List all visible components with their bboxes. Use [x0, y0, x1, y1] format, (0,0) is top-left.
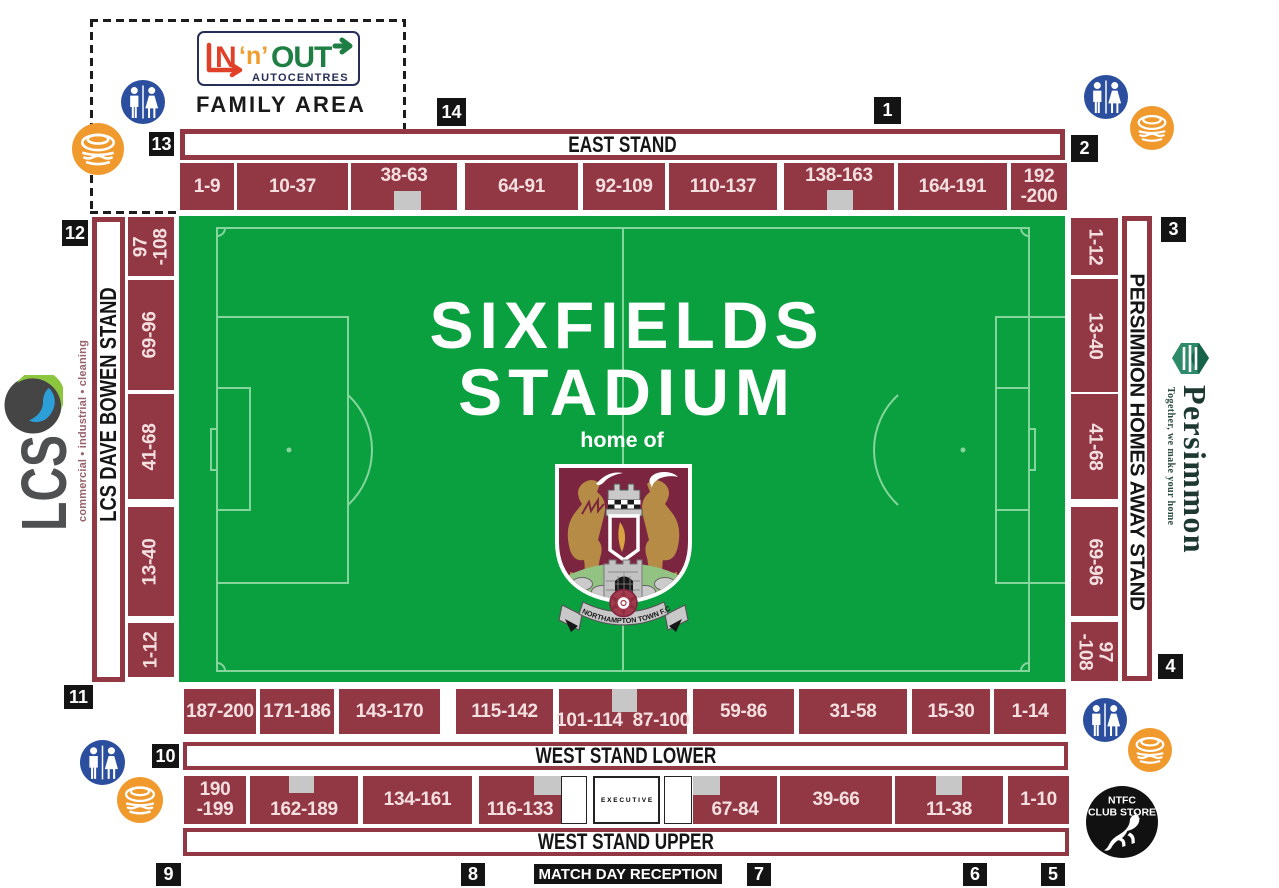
svg-text:AUTOCENTRES: AUTOCENTRES [252, 72, 349, 84]
svg-text:‘n’: ‘n’ [239, 42, 268, 70]
svg-text:NTFC: NTFC [1108, 795, 1136, 807]
svg-text:OUT: OUT [271, 41, 332, 74]
svg-text:N: N [215, 41, 237, 74]
svg-text:CLUB STORE: CLUB STORE [1088, 807, 1156, 819]
